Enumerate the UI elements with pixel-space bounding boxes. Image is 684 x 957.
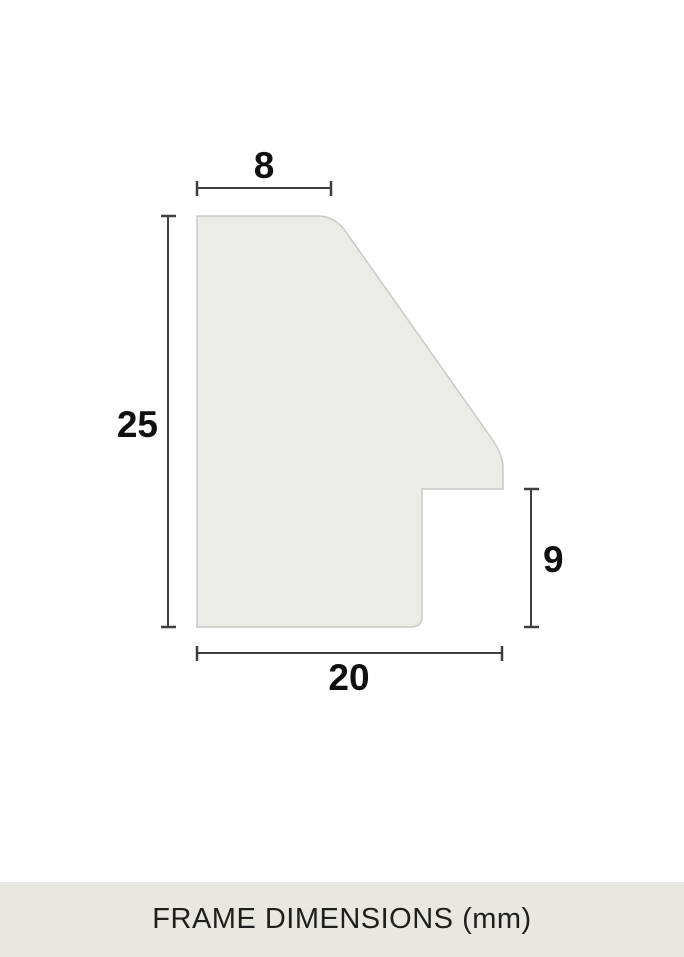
dimension-top-width: 8 (197, 145, 331, 196)
dimension-left-height: 25 (117, 216, 176, 627)
dimension-value-label: 25 (117, 404, 158, 445)
dimension-value-label: 9 (543, 539, 564, 580)
dimension-bottom-width: 20 (197, 646, 502, 698)
frame-profile-shape (197, 216, 503, 627)
dimension-value-label: 20 (328, 657, 369, 698)
frame-dimensions-page: 8 25 9 20 FRAME DIMENSIONS (mm) (0, 0, 684, 957)
dimension-rabbet-height: 9 (524, 489, 564, 627)
frame-profile-diagram: 8 25 9 20 (0, 0, 684, 882)
footer-title: FRAME DIMENSIONS (mm) (152, 903, 531, 936)
footer-bar: FRAME DIMENSIONS (mm) (0, 882, 684, 957)
dimension-value-label: 8 (254, 145, 275, 186)
